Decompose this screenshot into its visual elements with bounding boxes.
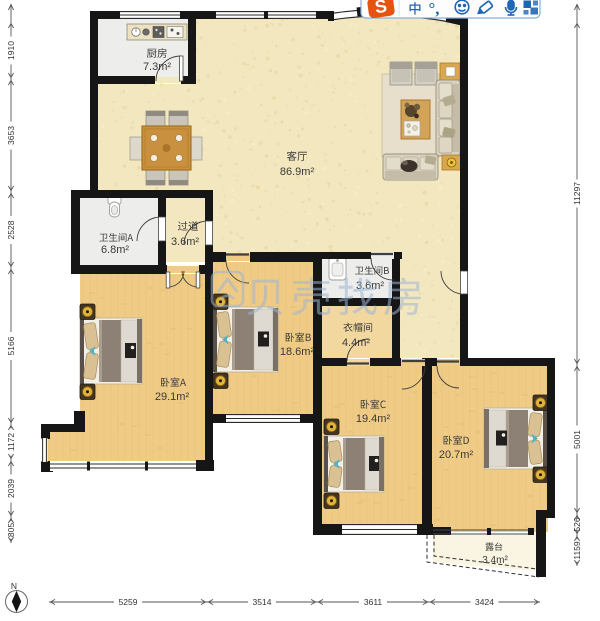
svg-text:3.4m²: 3.4m² — [482, 555, 508, 566]
svg-text:11297: 11297 — [572, 182, 582, 205]
svg-text:6.8m²: 6.8m² — [101, 244, 129, 256]
svg-text:7.3m²: 7.3m² — [143, 61, 171, 73]
svg-text:1172: 1172 — [6, 433, 16, 452]
svg-text:805: 805 — [6, 523, 16, 537]
svg-text:86.9m²: 86.9m² — [280, 166, 315, 178]
svg-text:19.4m²: 19.4m² — [356, 413, 391, 425]
svg-text:3514: 3514 — [253, 597, 272, 607]
svg-text:20.7m²: 20.7m² — [439, 449, 474, 461]
svg-text:3424: 3424 — [475, 597, 494, 607]
svg-text:526: 526 — [572, 517, 582, 531]
svg-text:29.1m²: 29.1m² — [155, 391, 190, 403]
svg-text:N: N — [11, 581, 17, 591]
svg-text:°,: °, — [428, 0, 439, 18]
svg-text:3.6m²: 3.6m² — [171, 236, 199, 248]
svg-text:1159: 1159 — [572, 541, 582, 560]
svg-text:4.4m²: 4.4m² — [342, 337, 370, 349]
svg-text:5001: 5001 — [572, 430, 582, 449]
svg-text:3653: 3653 — [6, 126, 16, 145]
svg-text:18.6m²: 18.6m² — [280, 346, 315, 358]
svg-text:5259: 5259 — [119, 597, 138, 607]
svg-text:S: S — [374, 0, 389, 17]
svg-text:3611: 3611 — [364, 597, 383, 607]
svg-text:5166: 5166 — [6, 336, 16, 355]
svg-text:2039: 2039 — [6, 479, 16, 498]
svg-text:2528: 2528 — [6, 220, 16, 239]
svg-text:1910: 1910 — [6, 41, 16, 60]
